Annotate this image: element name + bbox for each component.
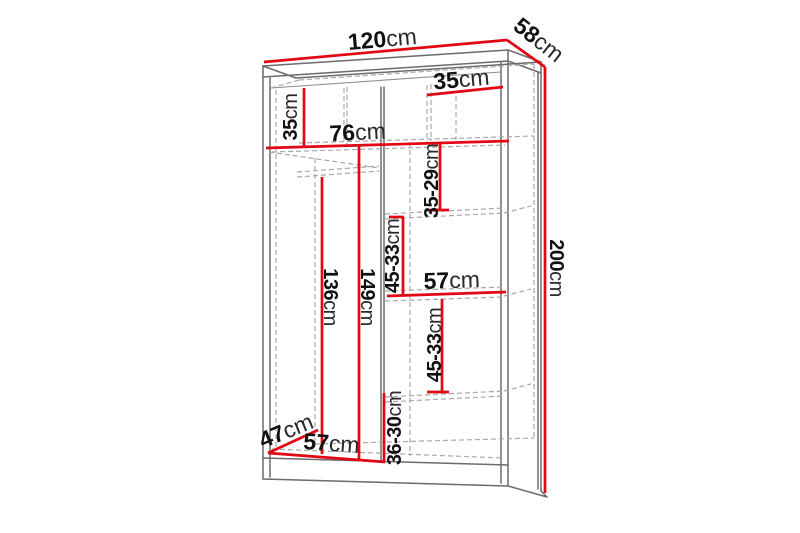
dim-76-label: 76cm (329, 118, 387, 147)
dim-45-33-upper-value: 45-33 (382, 244, 404, 293)
diagram-canvas: 120cm 58cm 200cm 35cm 76cm 35cm 35-29cm … (0, 0, 800, 533)
dim-136-label: 136cm (319, 268, 341, 326)
dim-57-bottom-value: 57 (303, 428, 330, 456)
dim-36-30-unit: cm (384, 391, 406, 417)
dim-top-left-35-value: 35 (280, 119, 302, 141)
dim-149-unit: cm (356, 300, 378, 326)
dim-line-76 (266, 141, 509, 148)
wardrobe-dimension-diagram: 120cm 58cm 200cm 35cm 76cm 35cm 35-29cm … (0, 0, 800, 533)
dim-top-right-35-label: 35cm (432, 64, 490, 95)
dim-35-29-value: 35-29 (421, 169, 443, 218)
dim-57-right-value: 57 (423, 267, 449, 294)
bottom-front-edge (263, 479, 508, 486)
dim-57-bottom-label: 57cm (303, 428, 361, 458)
hanging-rail-back (297, 171, 379, 177)
dim-height-unit: cm (545, 271, 567, 297)
hidden-edge (269, 152, 379, 168)
dim-45-33-upper-label: 45-33cm (382, 219, 404, 293)
dim-depth-label: 58cm (509, 12, 569, 67)
dim-36-30-value: 36-30 (384, 416, 406, 465)
dim-35-29-unit: cm (421, 144, 443, 170)
dim-top-left-35-label: 35cm (280, 94, 302, 141)
dim-top-right-35-unit: cm (458, 64, 491, 93)
dim-57-right-unit: cm (449, 266, 481, 293)
dim-width-value: 120 (347, 26, 387, 55)
dim-top-right-35-value: 35 (432, 66, 460, 94)
dim-top-left-35-unit: cm (280, 94, 302, 120)
dim-width-unit: cm (385, 23, 418, 52)
dim-45-33-lower-unit: cm (424, 308, 446, 334)
dim-149-value: 149 (356, 268, 378, 300)
dim-76-unit: cm (354, 118, 386, 146)
dim-76-value: 76 (329, 119, 356, 146)
dim-45-33-upper-unit: cm (382, 219, 404, 245)
dim-45-33-lower-value: 45-33 (424, 333, 446, 382)
dim-45-33-lower-label: 45-33cm (424, 308, 446, 382)
dim-height-value: 200 (545, 239, 567, 271)
dim-36-30-label: 36-30cm (384, 391, 406, 465)
dim-57-bottom-unit: cm (328, 430, 360, 458)
dim-136-unit: cm (319, 300, 341, 326)
dim-35-29-label: 35-29cm (421, 144, 443, 218)
dim-57-right-label: 57cm (423, 266, 480, 294)
shelf-edge (385, 297, 504, 301)
dim-height-label: 200cm (545, 239, 567, 297)
top-back-edge (296, 62, 541, 78)
dim-149-label: 149cm (356, 268, 378, 326)
dim-136-value: 136 (319, 268, 341, 300)
hanging-rail-front (297, 166, 379, 172)
